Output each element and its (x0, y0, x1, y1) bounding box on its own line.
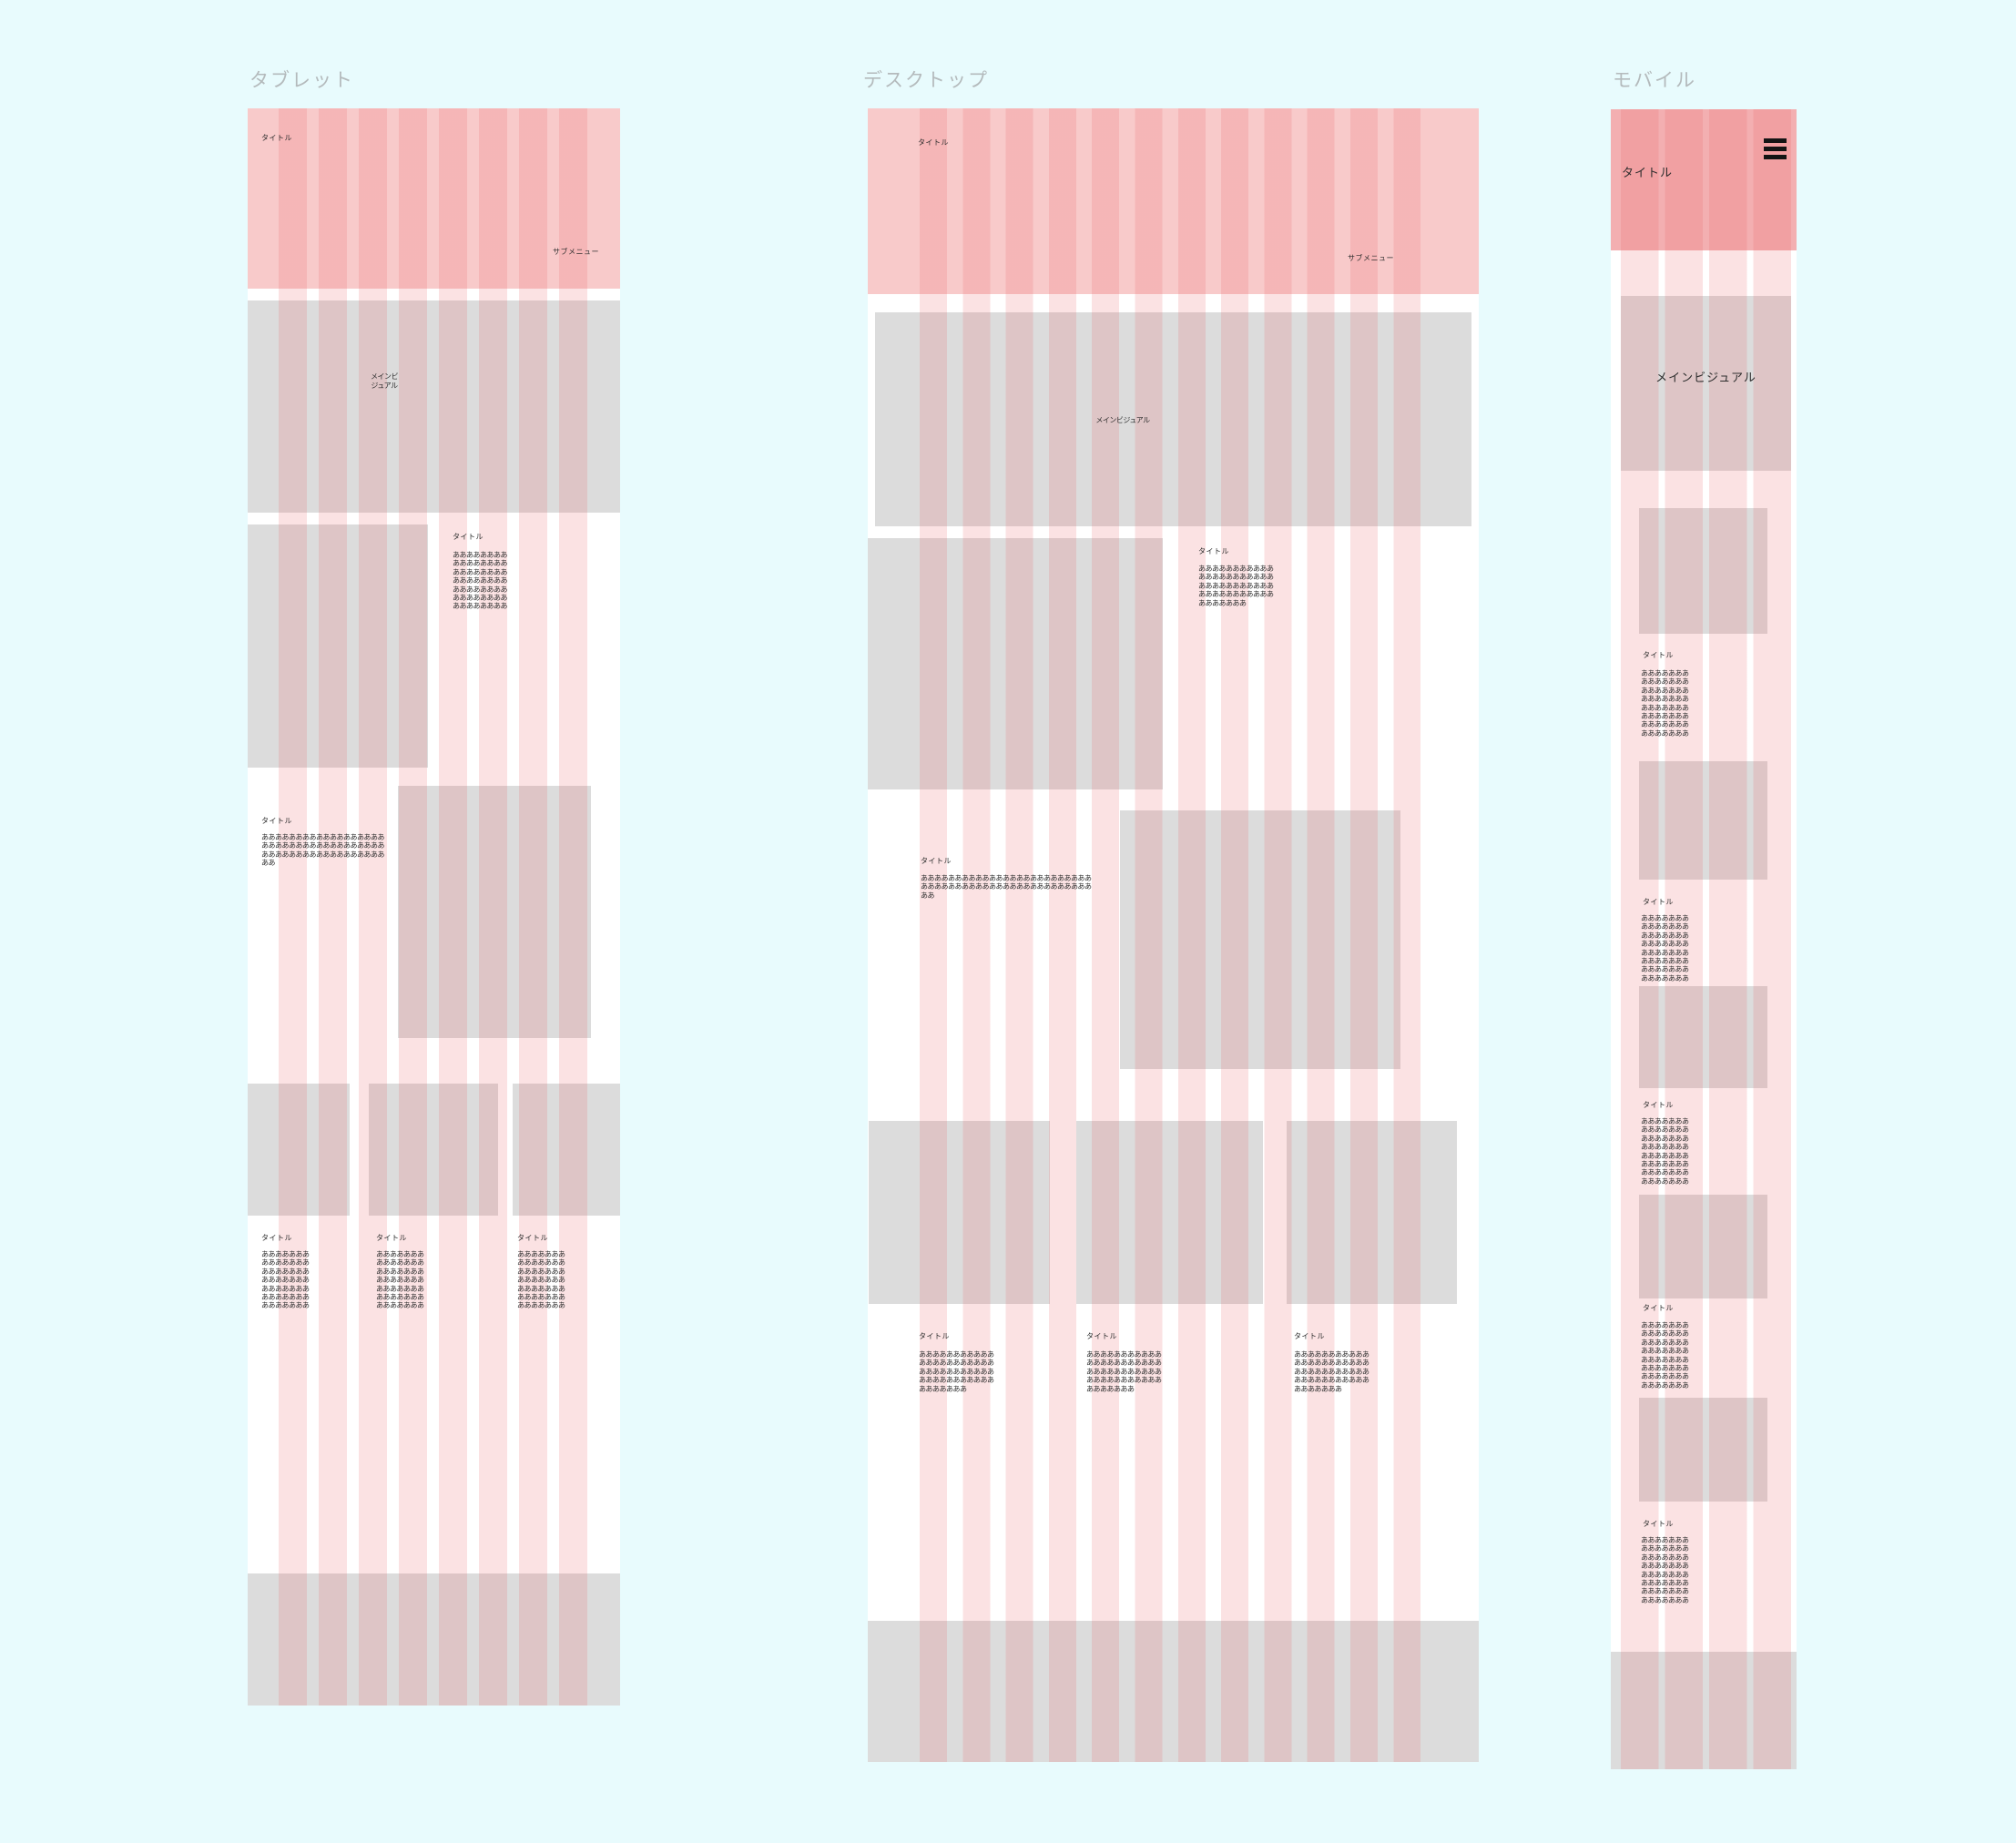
desktop-card-3-title: タイトル (1294, 1332, 1325, 1340)
mobile-item-4-image (1639, 1195, 1767, 1298)
artboard-label-tablet[interactable]: タブレット (249, 66, 354, 93)
tablet-card-1-image (248, 1084, 350, 1216)
artboard-mobile[interactable]: タイトル メインビジュアル タイトル あああああああ あああああああ あああああ… (1611, 109, 1797, 1769)
mobile-footer-bar (1611, 1652, 1797, 1769)
mobile-item-4-body: あああああああ あああああああ あああああああ あああああああ あああああああ … (1641, 1321, 1689, 1390)
mobile-item-5-body: あああああああ あああああああ あああああああ あああああああ あああああああ … (1641, 1536, 1689, 1604)
desktop-card-1-title: タイトル (919, 1332, 950, 1340)
tablet-main-visual-label: メインビ ジュアル (339, 372, 430, 391)
desktop-header-submenu: サブメニュー (1348, 254, 1394, 262)
desktop-section-b-image (1120, 810, 1400, 1069)
tablet-section-b-body: ああああああああああああああああああ ああああああああああああああああああ ああ… (261, 833, 384, 868)
desktop-card-2-body: あああああああああああ あああああああああああ あああああああああああ ああああ… (1086, 1350, 1162, 1393)
mobile-item-1-image (1639, 508, 1767, 634)
tablet-footer-bar (248, 1573, 620, 1706)
tablet-section-b-title: タイトル (261, 817, 292, 825)
desktop-section-b-body: あああああああああああああああああああああああああ ああああああああああああああ… (921, 874, 1092, 900)
tablet-header-bar (248, 108, 620, 289)
mobile-item-3-body: あああああああ あああああああ あああああああ あああああああ あああああああ … (1641, 1117, 1689, 1186)
tablet-card-2-image (369, 1084, 498, 1216)
mobile-item-1-body: あああああああ あああああああ あああああああ あああああああ あああああああ … (1641, 669, 1689, 738)
mobile-item-2-image (1639, 761, 1767, 880)
artboard-tablet[interactable]: タイトル サブメニュー メインビ ジュアル タイトル ああああああああ ああああ… (248, 108, 620, 1706)
mobile-main-visual-label: メインビジュアル (1621, 371, 1791, 384)
desktop-card-1-body: あああああああああああ あああああああああああ あああああああああああ ああああ… (919, 1350, 994, 1393)
tablet-card-2-title: タイトル (376, 1234, 407, 1242)
desktop-card-2-title: タイトル (1086, 1332, 1117, 1340)
desktop-card-1-image (869, 1121, 1050, 1304)
desktop-section-b-title: タイトル (921, 857, 952, 865)
desktop-header-bar (868, 108, 1479, 294)
mobile-item-5-image (1639, 1398, 1767, 1502)
tablet-section-b-image (398, 786, 591, 1038)
tablet-header-title: タイトル (261, 134, 292, 142)
design-canvas: タブレット タイトル サブメニュー メインビ ジュアル タイトル あああああああ… (0, 0, 2016, 1843)
artboard-desktop[interactable]: タイトル サブメニュー メインビジュアル タイトル あああああああああああ ああ… (868, 108, 1479, 1762)
mobile-item-2-body: あああああああ あああああああ あああああああ あああああああ あああああああ … (1641, 914, 1689, 983)
mobile-item-5-title: タイトル (1643, 1520, 1674, 1528)
tablet-card-3-image (513, 1084, 620, 1216)
tablet-card-2-body: あああああああ あああああああ あああああああ あああああああ あああああああ … (376, 1250, 424, 1310)
tablet-section-a-title: タイトル (453, 533, 484, 541)
mobile-item-1-title: タイトル (1643, 651, 1674, 659)
desktop-card-3-image (1287, 1121, 1457, 1304)
desktop-section-a-title: タイトル (1198, 547, 1229, 555)
artboard-label-mobile[interactable]: モバイル (1613, 66, 1696, 93)
artboard-label-desktop[interactable]: デスクトップ (863, 66, 989, 93)
desktop-section-a-body: あああああああああああ あああああああああああ あああああああああああ ああああ… (1198, 565, 1274, 607)
tablet-section-a-body: ああああああああ ああああああああ ああああああああ ああああああああ ああああ… (453, 551, 507, 611)
desktop-header-title: タイトル (918, 138, 949, 147)
desktop-main-visual-label: メインビジュアル (868, 416, 1378, 424)
tablet-card-1-title: タイトル (261, 1234, 292, 1242)
desktop-footer-bar (868, 1621, 1479, 1762)
hamburger-menu-icon[interactable] (1764, 138, 1787, 159)
mobile-item-4-title: タイトル (1643, 1304, 1674, 1312)
tablet-header-submenu: サブメニュー (553, 248, 599, 256)
mobile-item-3-title: タイトル (1643, 1101, 1674, 1109)
mobile-item-3-image (1639, 986, 1767, 1088)
mobile-header-title: タイトル (1622, 166, 1673, 179)
tablet-card-1-body: あああああああ あああああああ あああああああ あああああああ あああああああ … (261, 1250, 310, 1310)
tablet-card-3-title: タイトル (517, 1234, 548, 1242)
desktop-card-3-body: あああああああああああ あああああああああああ あああああああああああ ああああ… (1294, 1350, 1369, 1393)
desktop-card-2-image (1076, 1121, 1263, 1304)
mobile-item-2-title: タイトル (1643, 898, 1674, 906)
mobile-header-bar (1611, 109, 1797, 250)
tablet-card-3-body: あああああああ あああああああ あああああああ あああああああ あああああああ … (517, 1250, 565, 1310)
tablet-main-visual-image (248, 300, 620, 513)
tablet-section-a-image (248, 524, 428, 768)
desktop-section-a-image (868, 538, 1163, 789)
